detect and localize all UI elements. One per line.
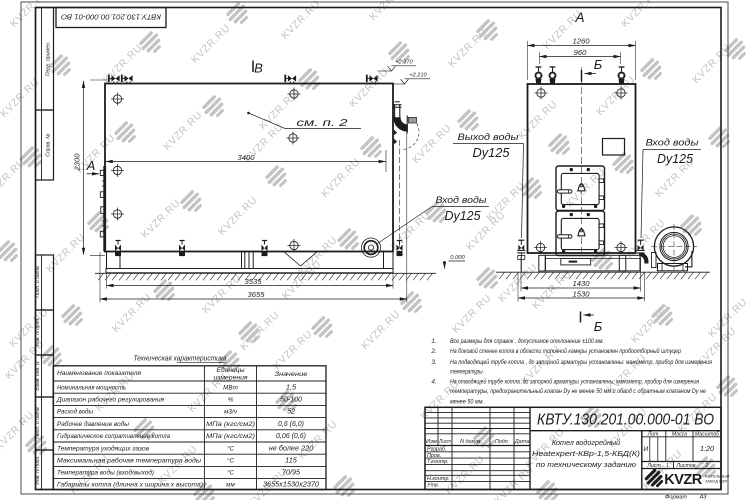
svg-text:м3/ч: м3/ч (224, 409, 238, 416)
svg-text:А3: А3 (699, 494, 708, 500)
svg-text:Перв. примен.: Перв. примен. (46, 42, 52, 76)
svg-text:А: А (574, 10, 584, 25)
svg-text:Dy125: Dy125 (473, 146, 510, 160)
svg-text:Справ. №: Справ. № (46, 133, 52, 157)
svg-text:температуры.: температуры. (450, 369, 484, 376)
svg-text:1:20: 1:20 (700, 444, 714, 453)
svg-text:Инв. N дубл.: Инв. N дубл. (35, 318, 41, 347)
svg-text:температуры, предохранительный: температуры, предохранительный клапан Dy… (450, 387, 706, 395)
svg-text:%: % (228, 397, 234, 404)
svg-text:На подводящей трубе котла ,: На подводящей трубе котла , до запорной … (450, 358, 712, 366)
svg-text:Изм: Изм (426, 439, 438, 445)
svg-text:Т.контр.: Т.контр. (427, 459, 449, 465)
svg-text:МПа (кгс/см2): МПа (кгс/см2) (206, 421, 255, 428)
svg-text:Все размеры для справок , допу: Все размеры для справок , допустимое отк… (450, 337, 604, 345)
svg-text:3655: 3655 (248, 290, 266, 299)
svg-text:3535: 3535 (245, 277, 263, 286)
svg-text:Диапазон рабочего регулировани: Диапазон рабочего регулирования (56, 396, 165, 404)
svg-text:Температура воды (вход/выход): Температура воды (вход/выход) (57, 469, 154, 477)
svg-text:Расход воды: Расход воды (57, 408, 93, 416)
svg-text:N докум.: N докум. (460, 439, 482, 445)
svg-text:3400: 3400 (238, 153, 256, 162)
svg-text:Гидравлическое сопративление к: Гидравлическое сопративление котла (57, 432, 170, 440)
svg-text:Вход воды: Вход воды (646, 138, 699, 149)
svg-text:0,6 (6,0): 0,6 (6,0) (278, 419, 304, 428)
svg-text:Dy125: Dy125 (657, 152, 693, 166)
svg-text:2.: 2. (430, 348, 436, 355)
svg-text:960: 960 (574, 48, 587, 57)
svg-text:0.000: 0.000 (450, 255, 465, 261)
svg-text:Формат: Формат (665, 494, 688, 500)
svg-text:мм: мм (226, 481, 235, 488)
svg-text:ЗАВОД РЭП: ЗАВОД РЭП (705, 479, 727, 484)
svg-text:И: И (643, 446, 648, 453)
svg-text:Рабочее давление воды: Рабочее давление воды (57, 420, 129, 428)
svg-text:°С: °С (227, 469, 235, 477)
svg-text:1430: 1430 (573, 279, 591, 288)
svg-text:Температура уходящих газов: Температура уходящих газов (57, 444, 150, 452)
svg-text:3655х1530х2370: 3655х1530х2370 (263, 479, 319, 488)
svg-text:Вход воды: Вход воды (436, 195, 487, 206)
svg-text:Heatexpert-КВр-1,5-КБД(К): Heatexpert-КВр-1,5-КБД(К) (532, 449, 640, 458)
svg-text:В: В (254, 61, 263, 76)
svg-text:KVZR: KVZR (664, 472, 703, 488)
svg-text:Выход воды: Выход воды (458, 132, 519, 143)
svg-text:Наименование показателя: Наименование показателя (57, 370, 142, 377)
svg-text:Лит.: Лит. (647, 431, 660, 437)
svg-text:1.: 1. (431, 338, 436, 345)
svg-text:На отводящей трубе котла ,до з: На отводящей трубе котла ,до запорной ар… (450, 377, 699, 385)
svg-text:Единицы: Единицы (217, 368, 246, 374)
svg-text:менее 50 мм.: менее 50 мм. (450, 398, 484, 405)
svg-text:4.: 4. (431, 378, 436, 385)
svg-text:На боковой стенке котла в обла: На боковой стенке котла в области топочн… (450, 347, 681, 355)
svg-text:Н.контр.: Н.контр. (427, 476, 450, 482)
svg-text:Б: Б (594, 319, 603, 334)
svg-text:2300: 2300 (73, 153, 82, 172)
svg-text:измерения: измерения (214, 375, 249, 381)
svg-text:по техническому заданию: по техническому заданию (536, 460, 637, 469)
svg-text:Номинальная мощность: Номинальная мощность (57, 384, 126, 391)
svg-text:Б: Б (594, 57, 603, 72)
svg-text:0,06 (0,6): 0,06 (0,6) (276, 431, 306, 440)
svg-text:Техническая характеристика: Техническая характеристика (134, 356, 227, 363)
svg-text:Дата: Дата (514, 439, 529, 445)
svg-text:А: А (86, 158, 96, 173)
svg-text:°С: °С (227, 444, 235, 452)
svg-text:50-100: 50-100 (280, 395, 302, 404)
svg-text:115: 115 (285, 456, 298, 465)
svg-text:Подп.: Подп. (495, 439, 509, 445)
svg-text:КВТУ.130.201.00.000-01 ВО: КВТУ.130.201.00.000-01 ВО (61, 13, 161, 22)
svg-text:Котел водогрейный: Котел водогрейный (552, 438, 620, 447)
svg-text:не более 220: не более 220 (269, 443, 314, 452)
svg-text:КВТУ.130.201.00.000-01 ВО: КВТУ.130.201.00.000-01 ВО (537, 412, 714, 429)
svg-text:70/95: 70/95 (282, 468, 301, 477)
svg-text:Максимальная рабочая температу: Максимальная рабочая температура воды (57, 457, 201, 465)
svg-text:Взам. инв. N: Взам. инв. N (35, 361, 41, 391)
svg-text:Подп. и дата: Подп. и дата (35, 407, 41, 439)
svg-text:1,5: 1,5 (286, 382, 297, 391)
svg-text:+2.370: +2.370 (395, 60, 413, 66)
svg-text:см. п. 2: см. п. 2 (297, 117, 348, 129)
svg-text:МВт: МВт (223, 384, 238, 391)
svg-text:Инв. N подл.: Инв. N подл. (35, 455, 41, 484)
svg-text:Разраб.: Разраб. (427, 447, 447, 453)
svg-text:Утв.: Утв. (426, 483, 439, 489)
svg-text:3.: 3. (431, 359, 436, 366)
svg-text:1260: 1260 (573, 37, 591, 46)
svg-text:Масштаб: Масштаб (695, 431, 720, 437)
svg-text:Значение: Значение (275, 371, 309, 378)
svg-text:Масса: Масса (672, 431, 687, 437)
svg-text:Габариты котла (длинна х ширин: Габариты котла (длинна х ширина х высота… (57, 480, 203, 488)
svg-text:Подп. и дата: Подп. и дата (35, 266, 41, 298)
svg-text:°С: °С (227, 457, 235, 465)
svg-text:МПа (кгс/см2): МПа (кгс/см2) (206, 433, 255, 440)
svg-text:1530: 1530 (573, 289, 591, 298)
svg-text:52: 52 (287, 407, 295, 416)
svg-text:Dy125: Dy125 (445, 209, 481, 223)
svg-text:Пров.: Пров. (427, 453, 441, 459)
svg-text:+2.210: +2.210 (409, 73, 427, 79)
svg-text:Лист: Лист (438, 439, 452, 445)
